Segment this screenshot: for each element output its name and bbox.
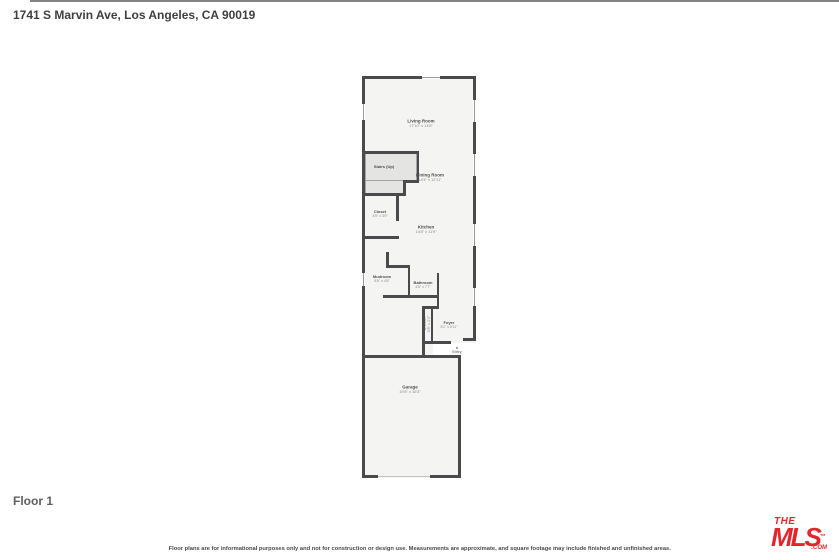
wall-segment-top	[362, 76, 476, 79]
garage-door-line	[378, 476, 430, 477]
wall-segment-foyer-bottom	[422, 341, 451, 344]
wall-segment-stairs-bottom	[362, 193, 406, 196]
floor-plan: Living Room 17'10" x 14'8" Stairs (Up) D…	[360, 76, 478, 486]
window-marker	[473, 154, 476, 176]
window-marker	[362, 273, 365, 286]
window-marker	[473, 100, 476, 122]
room-label-stairs: Stairs (Up)	[374, 165, 394, 170]
room-label-kitchen: Kitchen 14'8" x 11'9"	[415, 225, 436, 236]
entry-marker: ▲ Entry	[452, 346, 461, 354]
wall-segment-garage-right	[458, 355, 461, 478]
room-label-closet: Closet 4'5" x 3'9"	[372, 209, 387, 218]
entry-label: Entry	[452, 350, 461, 354]
window-marker	[473, 288, 476, 306]
wall-segment-bathroom-right	[437, 273, 440, 309]
wall-segment-mudroom-bath-bottom	[383, 295, 439, 298]
room-label-bathroom: Bathroom 4'8" x 7'7"	[414, 280, 433, 289]
room-label-garage: Garage 19'8" x 16'3"	[399, 385, 420, 396]
window-marker	[473, 224, 476, 246]
wall-segment-closet-right	[396, 195, 399, 221]
footer: Floor plans are for informational purpos…	[0, 539, 839, 557]
room-label-mudroom: Mudroom 8'6" x 4'8"	[373, 274, 391, 283]
room-label-living-room: Living Room 17'10" x 14'8"	[407, 119, 434, 130]
wall-segment-garage-top	[362, 355, 461, 358]
top-border-line	[30, 0, 839, 2]
floor-number-label: Floor 1	[13, 494, 53, 508]
trademark-symbol: ™	[820, 534, 826, 540]
page-title: 1741 S Marvin Ave, Los Angeles, CA 90019	[13, 8, 255, 22]
wall-segment-entry-corner	[463, 338, 476, 341]
room-label-foyer: Foyer 8'2" x 5'11"	[441, 320, 458, 329]
wall-segment-garage-bottom-right	[430, 475, 461, 478]
window-marker	[422, 76, 440, 79]
floor-area-garage	[362, 343, 461, 478]
room-label-hall-closet: Closet 5'8" x 2'4"	[421, 316, 431, 333]
window-marker	[362, 104, 365, 120]
room-label-dining-room: Dining Room 14'4" x 12'11"	[416, 173, 444, 184]
the-mls-logo: THE MLS™ .COM	[771, 517, 831, 551]
wall-segment-stairs-top	[362, 151, 419, 154]
wall-segment-mudroom-bath-divider	[408, 265, 411, 298]
wall-segment-kitchen-sw-h	[386, 265, 410, 268]
disclaimer-text: Floor plans are for informational purpos…	[168, 545, 670, 551]
floorplan-page: 1741 S Marvin Ave, Los Angeles, CA 90019	[0, 0, 839, 560]
wall-segment-garage-bottom-left	[362, 475, 378, 478]
wall-segment-closet-bottom	[362, 236, 399, 239]
